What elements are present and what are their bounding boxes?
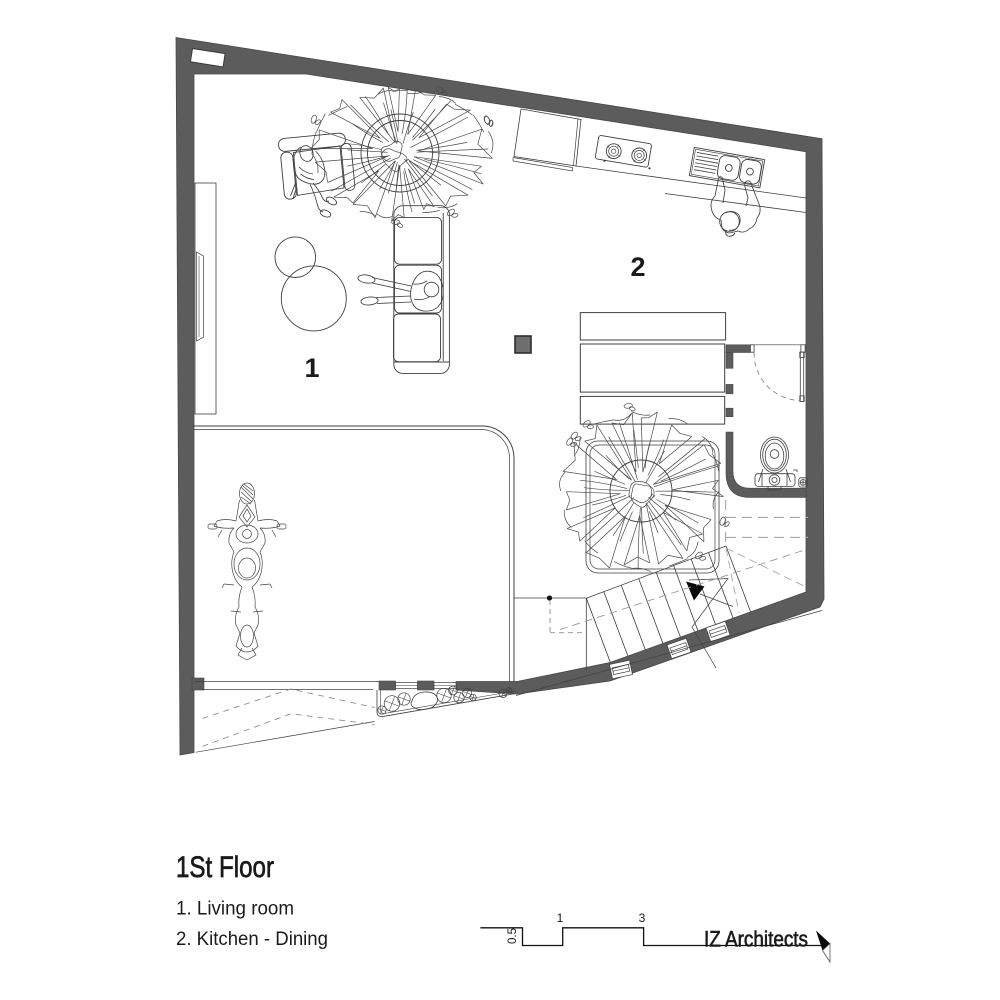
svg-text:0.5: 0.5: [507, 928, 519, 944]
svg-text:1St Floor: 1St Floor: [176, 851, 274, 884]
svg-text:1. Living room: 1. Living room: [176, 898, 294, 920]
svg-text:2. Kitchen - Dining: 2. Kitchen - Dining: [176, 928, 328, 950]
svg-text:1: 1: [557, 911, 564, 925]
svg-text:1: 1: [304, 353, 319, 383]
svg-text:3: 3: [639, 911, 646, 925]
svg-text:2: 2: [630, 252, 645, 282]
svg-text:IZ Architects: IZ Architects: [704, 927, 808, 952]
